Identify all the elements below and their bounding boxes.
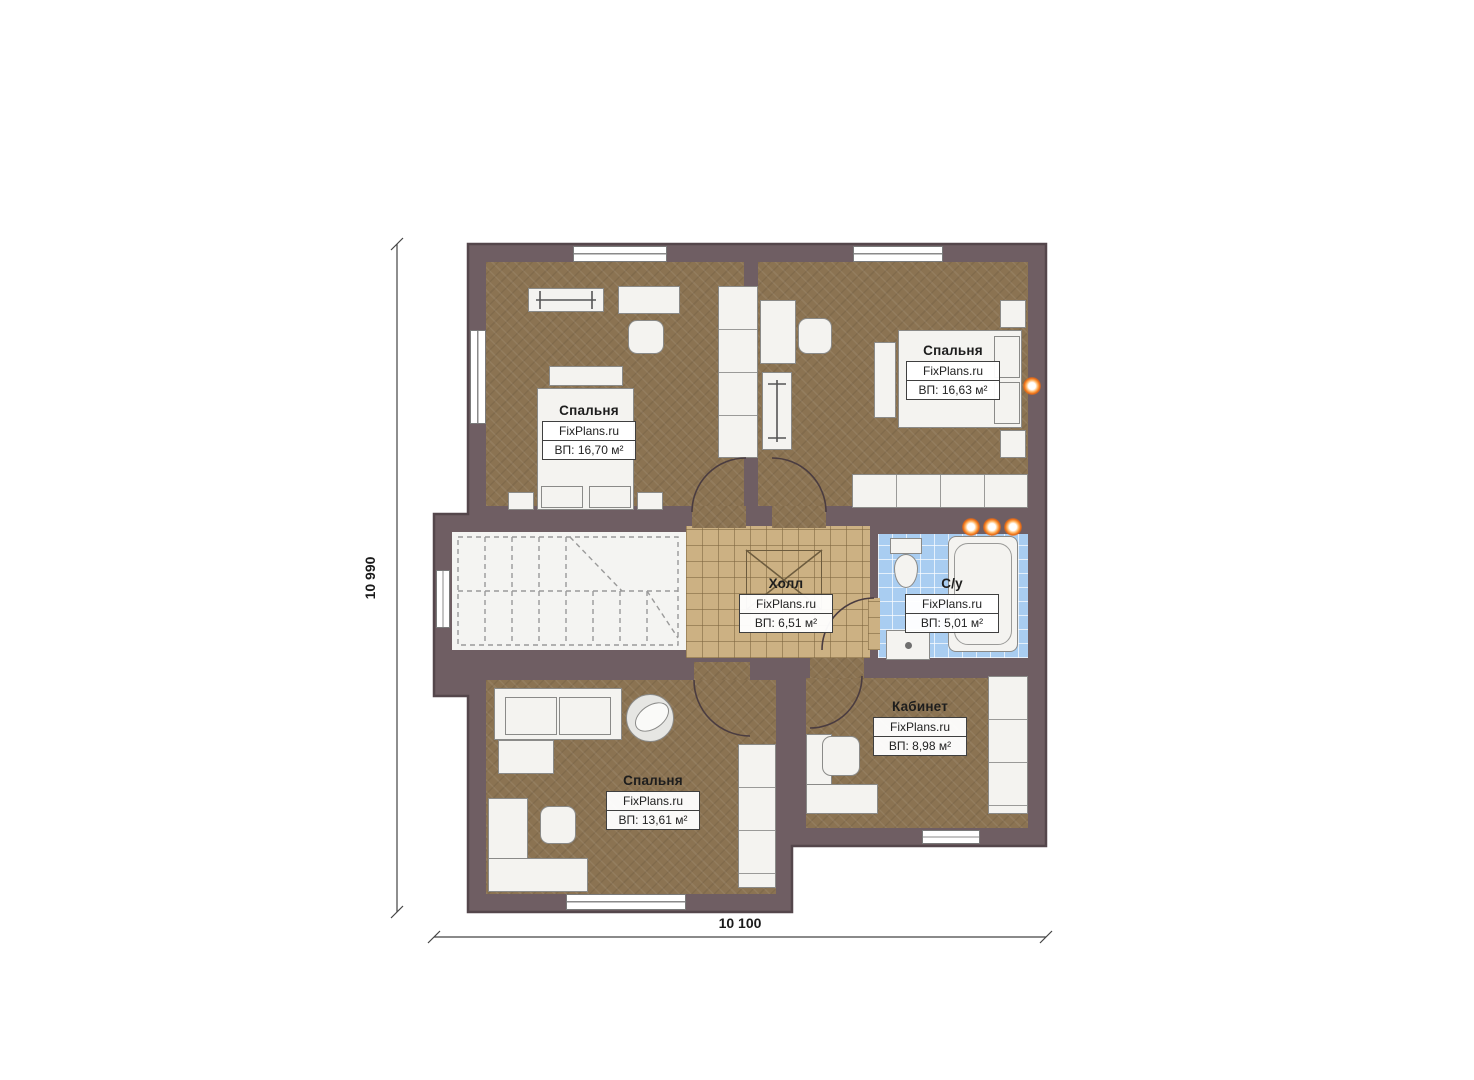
window-symbol — [922, 830, 980, 844]
room-area: ВП: 6,51 м² — [740, 614, 832, 632]
room-area: ВП: 8,98 м² — [874, 737, 966, 755]
window-symbol — [470, 330, 486, 424]
wall-light-icon — [1023, 377, 1041, 395]
room-label-office: Кабинет FixPlans.ru ВП: 8,98 м² — [850, 699, 990, 756]
wardrobe — [718, 286, 758, 458]
exercise-bench — [762, 372, 792, 450]
door-opening-bathroom — [868, 598, 880, 650]
wardrobe — [738, 744, 776, 888]
spotlight-icon — [1004, 518, 1022, 536]
nightstand — [1000, 430, 1026, 458]
desk-chair — [540, 806, 576, 844]
brand-watermark: FixPlans.ru — [874, 718, 966, 737]
brand-watermark: FixPlans.ru — [607, 792, 699, 811]
room-label-hall: Холл FixPlans.ru ВП: 6,51 м² — [716, 576, 856, 633]
room-name: Спальня — [583, 773, 723, 788]
plant-leaf — [630, 696, 675, 737]
room-label-bedroom-top-left: Спальня FixPlans.ru ВП: 16,70 м² — [519, 403, 659, 460]
desk-chair — [798, 318, 832, 354]
sink-drain — [905, 642, 912, 649]
room-label-bathroom: С/у FixPlans.ru ВП: 5,01 м² — [882, 576, 1022, 633]
dimension-label-width: 10 100 — [719, 915, 762, 931]
room-name: Спальня — [519, 403, 659, 418]
door-opening-bedroom-top-left — [692, 506, 746, 528]
room-area: ВП: 16,70 м² — [543, 441, 635, 459]
bed-footboard — [541, 486, 583, 508]
wardrobe-row — [852, 474, 1028, 508]
floor-plan-canvas: Спальня FixPlans.ru ВП: 16,70 м² Спальня… — [0, 0, 1474, 1080]
room-label-bedroom-top-right: Спальня FixPlans.ru ВП: 16,63 м² — [883, 343, 1023, 400]
sofa-cushion — [505, 697, 557, 735]
wardrobe — [988, 676, 1028, 814]
room-label-box: FixPlans.ru ВП: 16,63 м² — [906, 361, 1000, 400]
room-area: ВП: 16,63 м² — [907, 381, 999, 399]
toilet-tank — [890, 538, 922, 554]
door-opening-bedroom-bottom-left — [694, 662, 750, 680]
corner-desk — [806, 784, 878, 814]
sink-symbol — [886, 630, 930, 660]
sofa-cushion — [559, 697, 611, 735]
room-area: ВП: 13,61 м² — [607, 811, 699, 829]
window-symbol — [853, 246, 943, 262]
desk-chair — [628, 320, 664, 354]
headboard-shelf — [549, 366, 623, 386]
desk — [760, 300, 796, 364]
floor-stairwell — [452, 532, 686, 650]
room-label-box: FixPlans.ru ВП: 16,70 м² — [542, 421, 636, 460]
exercise-bench — [528, 288, 604, 312]
spotlight-icon — [983, 518, 1001, 536]
brand-watermark: FixPlans.ru — [543, 422, 635, 441]
room-label-box: FixPlans.ru ВП: 6,51 м² — [739, 594, 833, 633]
window-symbol — [573, 246, 667, 262]
corner-desk — [488, 858, 588, 892]
nightstand — [508, 492, 534, 510]
window-symbol — [436, 570, 450, 628]
bed-footboard — [589, 486, 631, 508]
brand-watermark: FixPlans.ru — [740, 595, 832, 614]
door-opening-bedroom-top-right — [772, 506, 826, 528]
desk — [618, 286, 680, 314]
room-label-box: FixPlans.ru ВП: 13,61 м² — [606, 791, 700, 830]
dimension-label-height: 10 990 — [362, 557, 378, 600]
room-name: С/у — [882, 576, 1022, 591]
room-label-box: FixPlans.ru ВП: 5,01 м² — [905, 594, 999, 633]
brand-watermark: FixPlans.ru — [907, 362, 999, 381]
shelf — [498, 740, 554, 774]
room-label-box: FixPlans.ru ВП: 8,98 м² — [873, 717, 967, 756]
nightstand — [1000, 300, 1026, 328]
spotlight-icon — [962, 518, 980, 536]
room-label-bedroom-bottom-left: Спальня FixPlans.ru ВП: 13,61 м² — [583, 773, 723, 830]
room-area: ВП: 5,01 м² — [906, 614, 998, 632]
room-name: Холл — [716, 576, 856, 591]
window-symbol — [566, 894, 686, 910]
round-plant-symbol — [626, 694, 674, 742]
sofa-symbol — [494, 688, 622, 740]
room-name: Кабинет — [850, 699, 990, 714]
door-opening-office — [810, 658, 864, 678]
nightstand — [637, 492, 663, 510]
brand-watermark: FixPlans.ru — [906, 595, 998, 614]
room-name: Спальня — [883, 343, 1023, 358]
